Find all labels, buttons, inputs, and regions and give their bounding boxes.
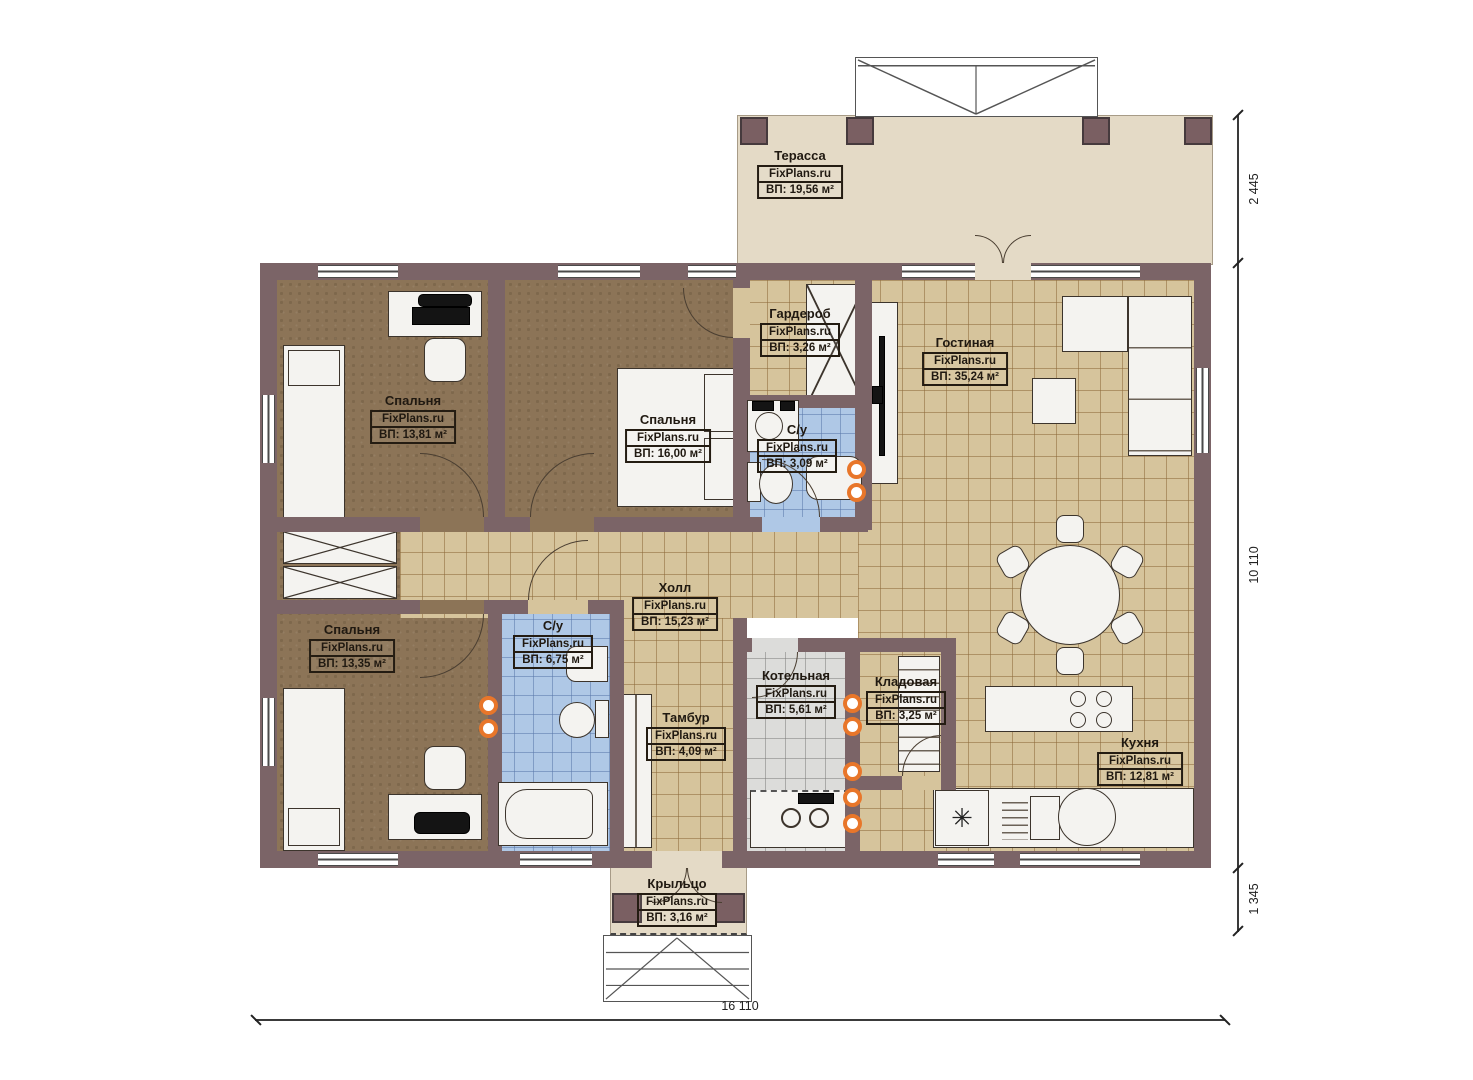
window xyxy=(902,265,975,278)
stove-burner xyxy=(1070,691,1086,707)
dimension-value: 1 345 xyxy=(1247,883,1261,914)
kitchen-island xyxy=(985,686,1133,732)
tv-console xyxy=(872,386,883,404)
bath2-door-opening xyxy=(528,600,588,614)
outer-wall-right xyxy=(1194,263,1211,868)
boiler-panel xyxy=(798,793,834,804)
dish-rack xyxy=(1002,796,1028,840)
wall-storage-bottom xyxy=(858,776,902,790)
brand-watermark: FixPlans.ru xyxy=(868,693,944,707)
room-label-bath2: С/у FixPlans.ru ВП: 6,75 м² xyxy=(513,618,593,669)
dining-chair xyxy=(1056,647,1084,675)
dimension-value: 16 110 xyxy=(721,999,758,1013)
snowflake-icon: ✳ xyxy=(951,803,973,834)
wall-bed1-bed2 xyxy=(488,280,505,530)
room-label-kitchen: Кухня FixPlans.ru ВП: 12,81 м² xyxy=(1097,735,1183,786)
storage-door-opening xyxy=(902,776,941,790)
sofa-section xyxy=(1128,296,1192,456)
dimension-value: 2 445 xyxy=(1247,173,1261,204)
pergola-roof xyxy=(855,57,1098,117)
fridge: ✳ xyxy=(935,790,989,846)
room-name: Холл xyxy=(632,580,718,595)
room-label-porch: Крыльцо FixPlans.ru ВП: 3,16 м² xyxy=(637,876,717,927)
brand-watermark: FixPlans.ru xyxy=(758,687,834,701)
room-area: ВП: 15,23 м² xyxy=(634,613,716,629)
room-area: ВП: 19,56 м² xyxy=(759,181,841,197)
room-name: Кладовая xyxy=(866,674,946,689)
terrace-door-opening xyxy=(975,263,1031,280)
room-name: Спальня xyxy=(625,412,711,427)
stove-burner xyxy=(1096,712,1112,728)
coffee-table xyxy=(1032,378,1076,424)
brand-watermark: FixPlans.ru xyxy=(648,729,724,743)
room-area: ВП: 3,16 м² xyxy=(639,909,715,925)
office-chair xyxy=(424,746,466,790)
room-label-boiler: Котельная FixPlans.ru ВП: 5,61 м² xyxy=(756,668,836,719)
washer-controls xyxy=(752,401,774,411)
washer-controls xyxy=(780,401,795,411)
room-area: ВП: 13,35 м² xyxy=(311,655,393,671)
window xyxy=(520,853,592,866)
room-area: ВП: 35,24 м² xyxy=(924,368,1006,384)
room-area: ВП: 3,26 м² xyxy=(762,339,838,355)
room-name: Спальня xyxy=(370,393,456,408)
bathtub-basin xyxy=(505,789,593,839)
closet xyxy=(283,566,397,599)
boiler-unit xyxy=(809,808,829,828)
radiator-icon xyxy=(843,762,862,781)
toilet-tank xyxy=(595,700,609,738)
laptop xyxy=(412,307,470,325)
room-name: С/у xyxy=(757,422,837,437)
radiator-icon xyxy=(847,460,866,479)
floor-plan: ✳ Терасса FixPlans.ru ВП: 19,56 м² Спаль… xyxy=(0,0,1473,1080)
room-label-living: Гостиная FixPlans.ru ВП: 35,24 м² xyxy=(922,335,1008,386)
terrace-column xyxy=(1184,117,1212,145)
bedroom3-door-opening xyxy=(420,600,484,614)
window xyxy=(318,265,398,278)
room-label-storage: Кладовая FixPlans.ru ВП: 3,25 м² xyxy=(866,674,946,725)
room-area: ВП: 13,81 м² xyxy=(372,426,454,442)
room-name: Терасса xyxy=(757,148,843,163)
room-label-hall: Холл FixPlans.ru ВП: 15,23 м² xyxy=(632,580,718,631)
room-area: ВП: 5,61 м² xyxy=(758,701,834,717)
room-name: Кухня xyxy=(1097,735,1183,750)
room-label-bedroom2: Спальня FixPlans.ru ВП: 16,00 м² xyxy=(625,412,711,463)
room-label-wardrobe: Гардероб FixPlans.ru ВП: 3,26 м² xyxy=(760,306,840,357)
room-name: Гостиная xyxy=(922,335,1008,350)
radiator-icon xyxy=(479,719,498,738)
wall-bath2-tambour xyxy=(610,600,624,852)
terrace-column xyxy=(846,117,874,145)
room-area: ВП: 3,25 м² xyxy=(868,707,944,723)
room-name: Спальня xyxy=(309,622,395,637)
outer-wall-left xyxy=(260,263,277,868)
room-label-bedroom1: Спальня FixPlans.ru ВП: 13,81 м² xyxy=(370,393,456,444)
printer xyxy=(418,294,472,307)
dimension-value: 10 110 xyxy=(1247,546,1261,583)
boiler-unit xyxy=(781,808,801,828)
room-label-terrace: Терасса FixPlans.ru ВП: 19,56 м² xyxy=(757,148,843,199)
radiator-icon xyxy=(843,694,862,713)
room-name: Гардероб xyxy=(760,306,840,321)
room-label-bath1: С/у FixPlans.ru ВП: 3,09 м² xyxy=(757,422,837,473)
radiator-icon xyxy=(843,788,862,807)
window xyxy=(1020,853,1140,866)
brand-watermark: FixPlans.ru xyxy=(759,441,835,455)
bedroom1-door-opening xyxy=(420,517,484,532)
window xyxy=(938,853,994,866)
wall-tambour-boiler xyxy=(733,618,747,852)
window xyxy=(262,698,275,766)
window xyxy=(1031,265,1140,278)
bath1-door-opening xyxy=(762,517,820,532)
brand-watermark: FixPlans.ru xyxy=(1099,754,1181,768)
radiator-icon xyxy=(847,483,866,502)
room-area: ВП: 12,81 м² xyxy=(1099,768,1181,784)
dining-table xyxy=(1020,545,1120,645)
room-area: ВП: 16,00 м² xyxy=(627,445,709,461)
room-area: ВП: 6,75 м² xyxy=(515,651,591,667)
window xyxy=(262,395,275,463)
sofa-section xyxy=(1062,296,1128,352)
dimension-line-bottom xyxy=(255,1019,1225,1021)
window xyxy=(688,265,736,278)
dimension-line-right xyxy=(1237,115,1239,932)
radiator-icon xyxy=(479,696,498,715)
stove-burner xyxy=(1070,712,1086,728)
brand-watermark: FixPlans.ru xyxy=(515,637,591,651)
window xyxy=(318,853,398,866)
room-label-bedroom3: Спальня FixPlans.ru ВП: 13,35 м² xyxy=(309,622,395,673)
printer xyxy=(414,812,470,834)
window xyxy=(558,265,640,278)
brand-watermark: FixPlans.ru xyxy=(627,431,709,445)
bedroom2-door-opening xyxy=(530,517,594,532)
room-name: Крыльцо xyxy=(637,876,717,891)
boiler-door-opening xyxy=(752,638,798,652)
brand-watermark: FixPlans.ru xyxy=(634,599,716,613)
bed-pillow xyxy=(288,350,340,386)
room-name: Котельная xyxy=(756,668,836,683)
radiator-icon xyxy=(843,717,862,736)
toilet-bowl xyxy=(559,702,595,738)
terrace-column xyxy=(740,117,768,145)
bed-pillow xyxy=(288,808,340,846)
entrance-door-opening xyxy=(652,851,722,868)
brand-watermark: FixPlans.ru xyxy=(639,895,715,909)
brand-watermark: FixPlans.ru xyxy=(759,167,841,181)
stove-burner xyxy=(1096,691,1112,707)
brand-watermark: FixPlans.ru xyxy=(372,412,454,426)
dining-chair xyxy=(1056,515,1084,543)
room-label-tambour: Тамбур FixPlans.ru ВП: 4,09 м² xyxy=(646,710,726,761)
office-chair xyxy=(424,338,466,382)
brand-watermark: FixPlans.ru xyxy=(311,641,393,655)
round-basin xyxy=(1058,788,1116,846)
porch-steps xyxy=(603,935,752,1002)
brand-watermark: FixPlans.ru xyxy=(924,354,1006,368)
room-area: ВП: 4,09 м² xyxy=(648,743,724,759)
closet xyxy=(283,531,397,564)
radiator-icon xyxy=(843,814,862,833)
brand-watermark: FixPlans.ru xyxy=(762,325,838,339)
window xyxy=(1196,368,1209,453)
room-name: Тамбур xyxy=(646,710,726,725)
kitchen-sink xyxy=(1030,796,1060,840)
room-name: С/у xyxy=(513,618,593,633)
room-area: ВП: 3,09 м² xyxy=(759,455,835,471)
wardrobe-door-opening xyxy=(733,288,750,338)
terrace-column xyxy=(1082,117,1110,145)
